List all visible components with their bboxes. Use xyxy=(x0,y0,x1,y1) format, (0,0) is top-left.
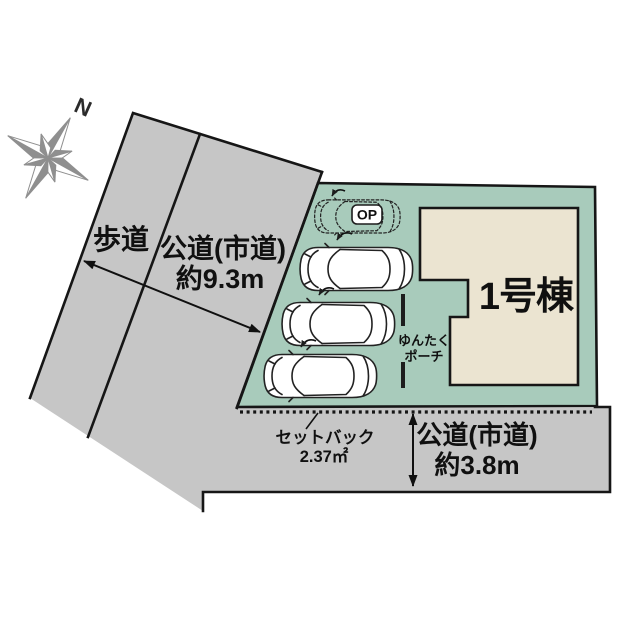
road-west-width: 約9.3m xyxy=(176,263,265,294)
site-plan-canvas: OP 歩道 公道(市道) 約9.3m 1号棟 ゆんたく ポーチ セットバック 2… xyxy=(0,0,640,640)
optional-parking-label: OP xyxy=(357,207,377,223)
car-3 xyxy=(282,299,394,350)
sidewalk-label: 歩道 xyxy=(93,223,149,255)
road-south-width: 約3.8m xyxy=(434,450,519,480)
car-2 xyxy=(300,244,412,295)
site-plan: OP 歩道 公道(市道) 約9.3m 1号棟 ゆんたく ポーチ セットバック 2… xyxy=(0,0,640,640)
north-label: N xyxy=(71,92,96,121)
road-south-name: 公道(市道) xyxy=(416,420,537,450)
porch-label-line1: ゆんたく xyxy=(398,333,450,348)
car-4 xyxy=(264,351,376,402)
building-label: 1号棟 xyxy=(479,276,575,318)
setback-area: 2.37㎡ xyxy=(300,446,349,466)
compass-rose-icon xyxy=(0,95,111,220)
porch-label-line2: ポーチ xyxy=(404,349,443,364)
setback-label: セットバック xyxy=(276,428,375,447)
road-west-name: 公道(市道) xyxy=(160,233,286,264)
